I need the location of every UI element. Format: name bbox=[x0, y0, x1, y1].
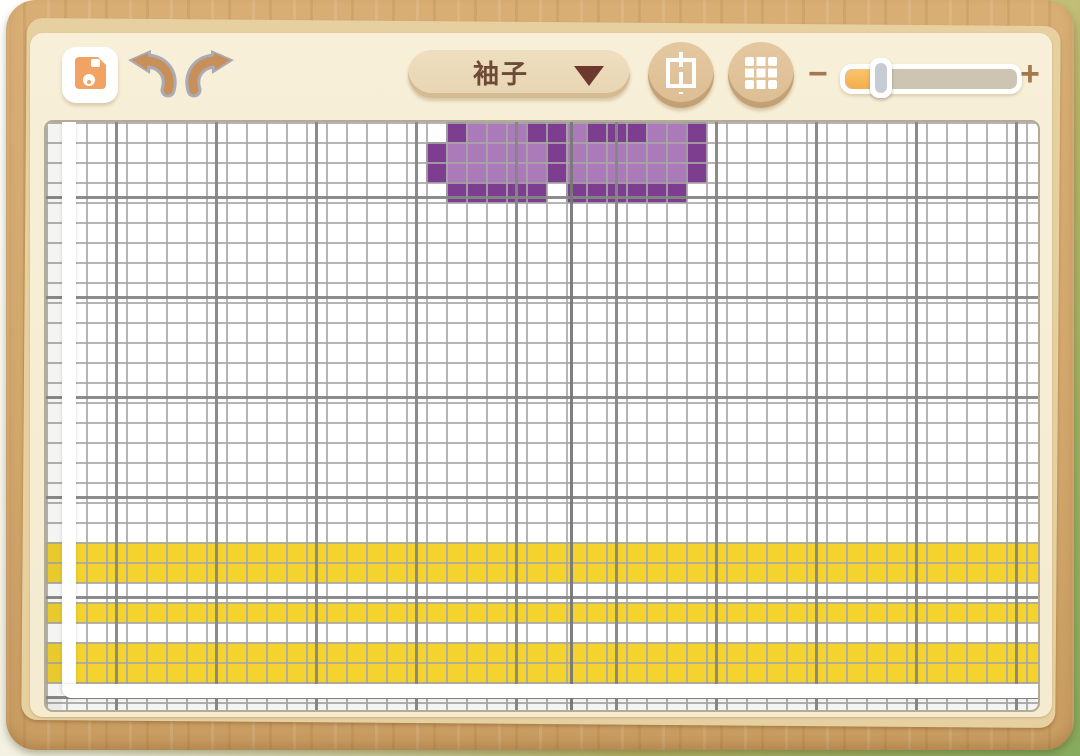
redo-button[interactable] bbox=[182, 46, 236, 102]
pattern-grid-canvas[interactable] bbox=[44, 120, 1040, 712]
pixel-cell[interactable] bbox=[666, 162, 687, 183]
floppy-disk-icon bbox=[71, 54, 109, 97]
zoom-slider-handle[interactable] bbox=[870, 58, 892, 98]
pixel-cell[interactable] bbox=[546, 122, 567, 143]
pixel-cell[interactable] bbox=[546, 142, 567, 163]
pixel-cell[interactable] bbox=[426, 142, 447, 163]
pixel-cell[interactable] bbox=[486, 182, 507, 203]
pixel-cell[interactable] bbox=[626, 182, 647, 203]
pixel-cell[interactable] bbox=[546, 162, 567, 183]
pixel-cell[interactable] bbox=[606, 162, 627, 183]
pixel-cell[interactable] bbox=[626, 162, 647, 183]
grid-icon bbox=[743, 55, 779, 96]
painted-cells-layer bbox=[46, 122, 1038, 710]
pixel-cell[interactable] bbox=[666, 142, 687, 163]
pixel-cell[interactable] bbox=[426, 162, 447, 183]
pixel-cell[interactable] bbox=[586, 162, 607, 183]
pixel-cell[interactable] bbox=[646, 122, 667, 143]
redo-arrow-icon bbox=[182, 89, 236, 106]
pixel-cell[interactable] bbox=[626, 122, 647, 143]
chevron-down-icon bbox=[574, 66, 604, 86]
pixel-cell[interactable] bbox=[686, 162, 707, 183]
pixel-cell[interactable] bbox=[526, 162, 547, 183]
pixel-cell[interactable] bbox=[646, 182, 667, 203]
pixel-cell[interactable] bbox=[466, 182, 487, 203]
pixel-cell[interactable] bbox=[446, 142, 467, 163]
zoom-slider[interactable] bbox=[840, 64, 1022, 94]
undo-arrow-icon bbox=[126, 89, 180, 106]
pixel-cell[interactable] bbox=[526, 142, 547, 163]
stripe-row[interactable] bbox=[46, 662, 1038, 683]
pixel-cell[interactable] bbox=[626, 142, 647, 163]
stripe-row[interactable] bbox=[46, 602, 1038, 623]
pixel-cell[interactable] bbox=[686, 142, 707, 163]
zoom-in-button[interactable]: + bbox=[1020, 56, 1040, 92]
pixel-cell[interactable] bbox=[646, 162, 667, 183]
grid-toggle-button[interactable] bbox=[728, 42, 794, 108]
stripe-row[interactable] bbox=[46, 562, 1038, 583]
pixel-cell[interactable] bbox=[446, 162, 467, 183]
mirror-symmetry-icon bbox=[659, 49, 703, 102]
pixel-cell[interactable] bbox=[666, 182, 687, 203]
pixel-cell[interactable] bbox=[606, 142, 627, 163]
pixel-cell[interactable] bbox=[586, 142, 607, 163]
stripe-row[interactable] bbox=[46, 642, 1038, 663]
undo-button[interactable] bbox=[126, 46, 180, 102]
pixel-cell[interactable] bbox=[606, 122, 627, 143]
pixel-cell[interactable] bbox=[586, 182, 607, 203]
pixel-cell[interactable] bbox=[526, 182, 547, 203]
pixel-cell[interactable] bbox=[666, 122, 687, 143]
stripe-row[interactable] bbox=[46, 542, 1038, 563]
pixel-cell[interactable] bbox=[506, 162, 527, 183]
garment-part-dropdown[interactable]: 袖子 bbox=[408, 50, 630, 98]
pixel-cell[interactable] bbox=[566, 122, 587, 143]
pixel-cell[interactable] bbox=[566, 142, 587, 163]
pixel-cell[interactable] bbox=[466, 122, 487, 143]
garment-part-label: 袖子 bbox=[473, 54, 529, 91]
symmetry-toggle-button[interactable] bbox=[648, 42, 714, 108]
piece-boundary-bottom bbox=[62, 684, 1038, 698]
pixel-cell[interactable] bbox=[446, 182, 467, 203]
pixel-cell[interactable] bbox=[526, 122, 547, 143]
pixel-cell[interactable] bbox=[486, 142, 507, 163]
crafting-window: 袖子 − + bbox=[0, 0, 1080, 756]
pixel-cell[interactable] bbox=[506, 182, 527, 203]
pixel-cell[interactable] bbox=[606, 182, 627, 203]
pixel-cell[interactable] bbox=[506, 122, 527, 143]
pixel-cell[interactable] bbox=[646, 142, 667, 163]
pixel-cell[interactable] bbox=[686, 122, 707, 143]
pixel-cell[interactable] bbox=[486, 162, 507, 183]
pixel-cell[interactable] bbox=[506, 142, 527, 163]
zoom-out-button[interactable]: − bbox=[808, 56, 828, 92]
pixel-cell[interactable] bbox=[466, 162, 487, 183]
pixel-cell[interactable] bbox=[446, 122, 467, 143]
piece-boundary-left bbox=[62, 122, 76, 698]
pixel-cell[interactable] bbox=[466, 142, 487, 163]
pixel-cell[interactable] bbox=[566, 182, 587, 203]
pixel-cell[interactable] bbox=[586, 122, 607, 143]
pixel-cell[interactable] bbox=[566, 162, 587, 183]
save-button[interactable] bbox=[62, 47, 118, 103]
pixel-cell[interactable] bbox=[486, 122, 507, 143]
